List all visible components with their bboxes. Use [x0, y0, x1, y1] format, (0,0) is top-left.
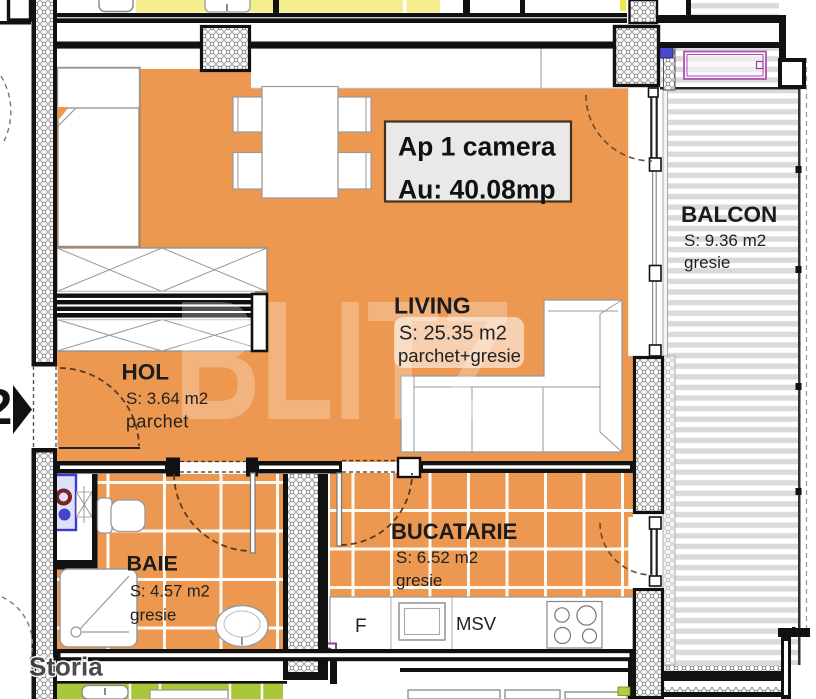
svg-text:BAIE: BAIE	[127, 552, 178, 576]
svg-text:BALCON: BALCON	[681, 202, 777, 227]
svg-text:S: 9.36 m2: S: 9.36 m2	[684, 231, 766, 250]
svg-text:BUCATARIE: BUCATARIE	[391, 519, 517, 544]
svg-text:MSV: MSV	[456, 613, 497, 634]
svg-text:S: 4.57 m2: S: 4.57 m2	[130, 583, 210, 601]
svg-text:S: 3.64 m2: S: 3.64 m2	[126, 389, 208, 408]
svg-text:Storia: Storia	[29, 652, 103, 682]
svg-text:gresie: gresie	[684, 253, 730, 272]
svg-text:2: 2	[0, 379, 12, 435]
svg-text:LIVING: LIVING	[394, 293, 471, 319]
svg-text:S: 6.52 m2: S: 6.52 m2	[396, 548, 478, 567]
svg-text:gresie: gresie	[396, 571, 442, 590]
svg-text:parchet: parchet	[126, 412, 189, 432]
svg-text:HOL: HOL	[122, 360, 170, 385]
svg-text:parchet+gresie: parchet+gresie	[398, 345, 521, 366]
svg-text:Ap 1 camera: Ap 1 camera	[398, 132, 556, 162]
svg-text:F: F	[355, 616, 367, 637]
svg-text:gresie: gresie	[130, 606, 176, 625]
svg-text:S: 25.35 m2: S: 25.35 m2	[399, 323, 507, 345]
svg-text:Au: 40.08mp: Au: 40.08mp	[398, 175, 556, 205]
